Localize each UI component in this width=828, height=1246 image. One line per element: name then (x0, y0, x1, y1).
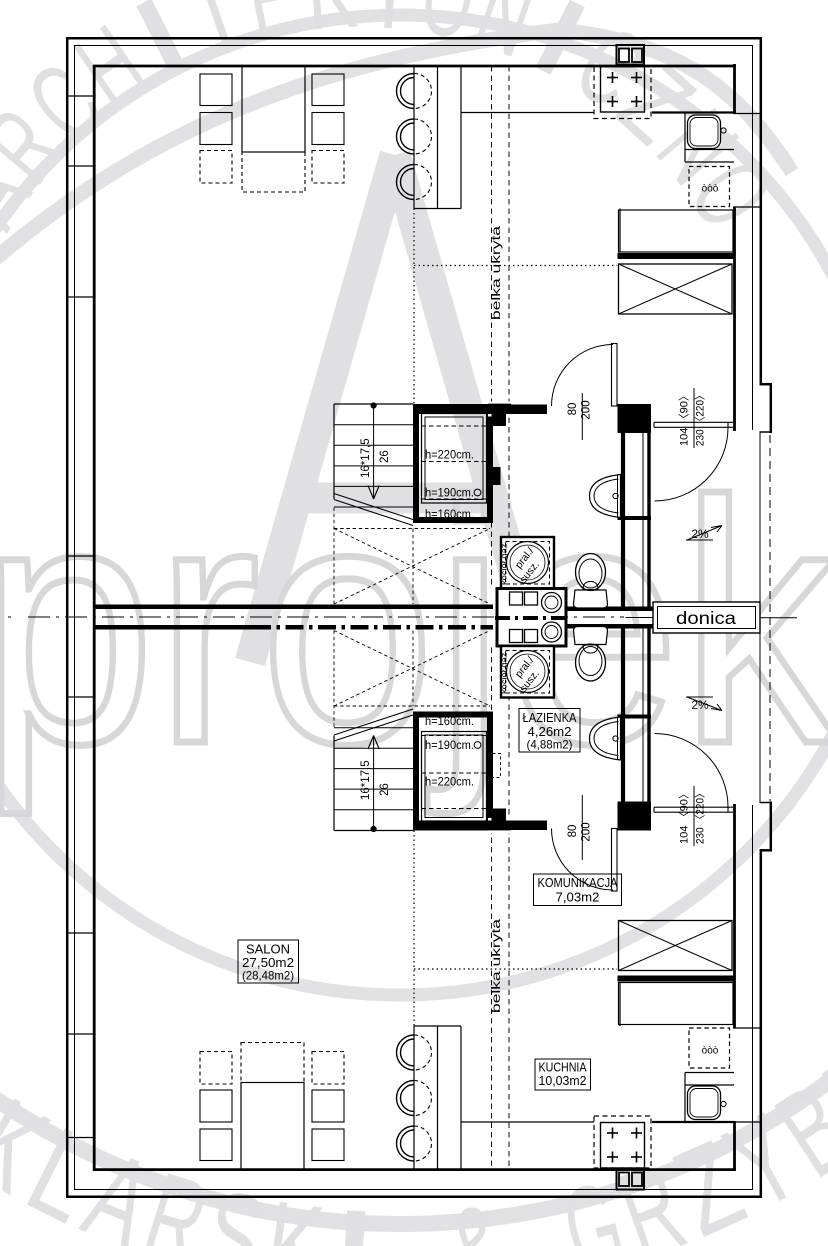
svg-text:h=160cm.: h=160cm. (425, 716, 474, 728)
svg-text:104 〈90〉: 104 〈90〉 (678, 788, 691, 844)
svg-text:I: I (322, 1184, 384, 1246)
svg-text:16*17,5: 16*17,5 (360, 438, 372, 478)
svg-text:òòò: òòò (702, 184, 719, 195)
svg-text:KOMUNIKACJA: KOMUNIKACJA (538, 876, 619, 890)
svg-text:(4,88m2): (4,88m2) (527, 738, 573, 752)
svg-text:200: 200 (581, 822, 593, 841)
svg-text:7,03m2: 7,03m2 (556, 890, 600, 905)
svg-text:2%: 2% (691, 527, 709, 541)
svg-text:belka ukryta: belka ukryta (491, 918, 503, 1013)
svg-text:104 〈90〉: 104 〈90〉 (678, 390, 691, 446)
svg-text:26: 26 (379, 450, 391, 463)
svg-text:(28,48m2): (28,48m2) (242, 969, 294, 983)
svg-text:h=190cm.: h=190cm. (425, 488, 474, 500)
svg-text:belka ukryta: belka ukryta (491, 225, 503, 320)
svg-text:kocioł gaz.: kocioł gaz. (500, 541, 509, 585)
svg-text:ŁAZIENKA: ŁAZIENKA (523, 711, 578, 725)
svg-text:h=190cm.: h=190cm. (425, 740, 474, 752)
svg-text:h=220cm.: h=220cm. (425, 450, 474, 462)
svg-text:òòò: òòò (702, 1046, 719, 1057)
svg-text:80: 80 (567, 403, 579, 416)
svg-text:h=160cm.: h=160cm. (425, 509, 474, 521)
svg-text:donica: donica (676, 608, 736, 628)
svg-text:16*17,5: 16*17,5 (360, 760, 372, 800)
svg-text:10,03m2: 10,03m2 (539, 1073, 587, 1088)
svg-text:230 〈220〉: 230 〈220〉 (694, 390, 707, 446)
svg-text:200: 200 (581, 400, 593, 419)
svg-text:80: 80 (567, 825, 579, 838)
svg-text:230 〈220〉: 230 〈220〉 (694, 788, 707, 844)
svg-text:h=220cm.: h=220cm. (425, 777, 474, 789)
svg-text:26: 26 (379, 783, 391, 796)
svg-text:kocioł gaz.: kocioł gaz. (500, 650, 509, 694)
